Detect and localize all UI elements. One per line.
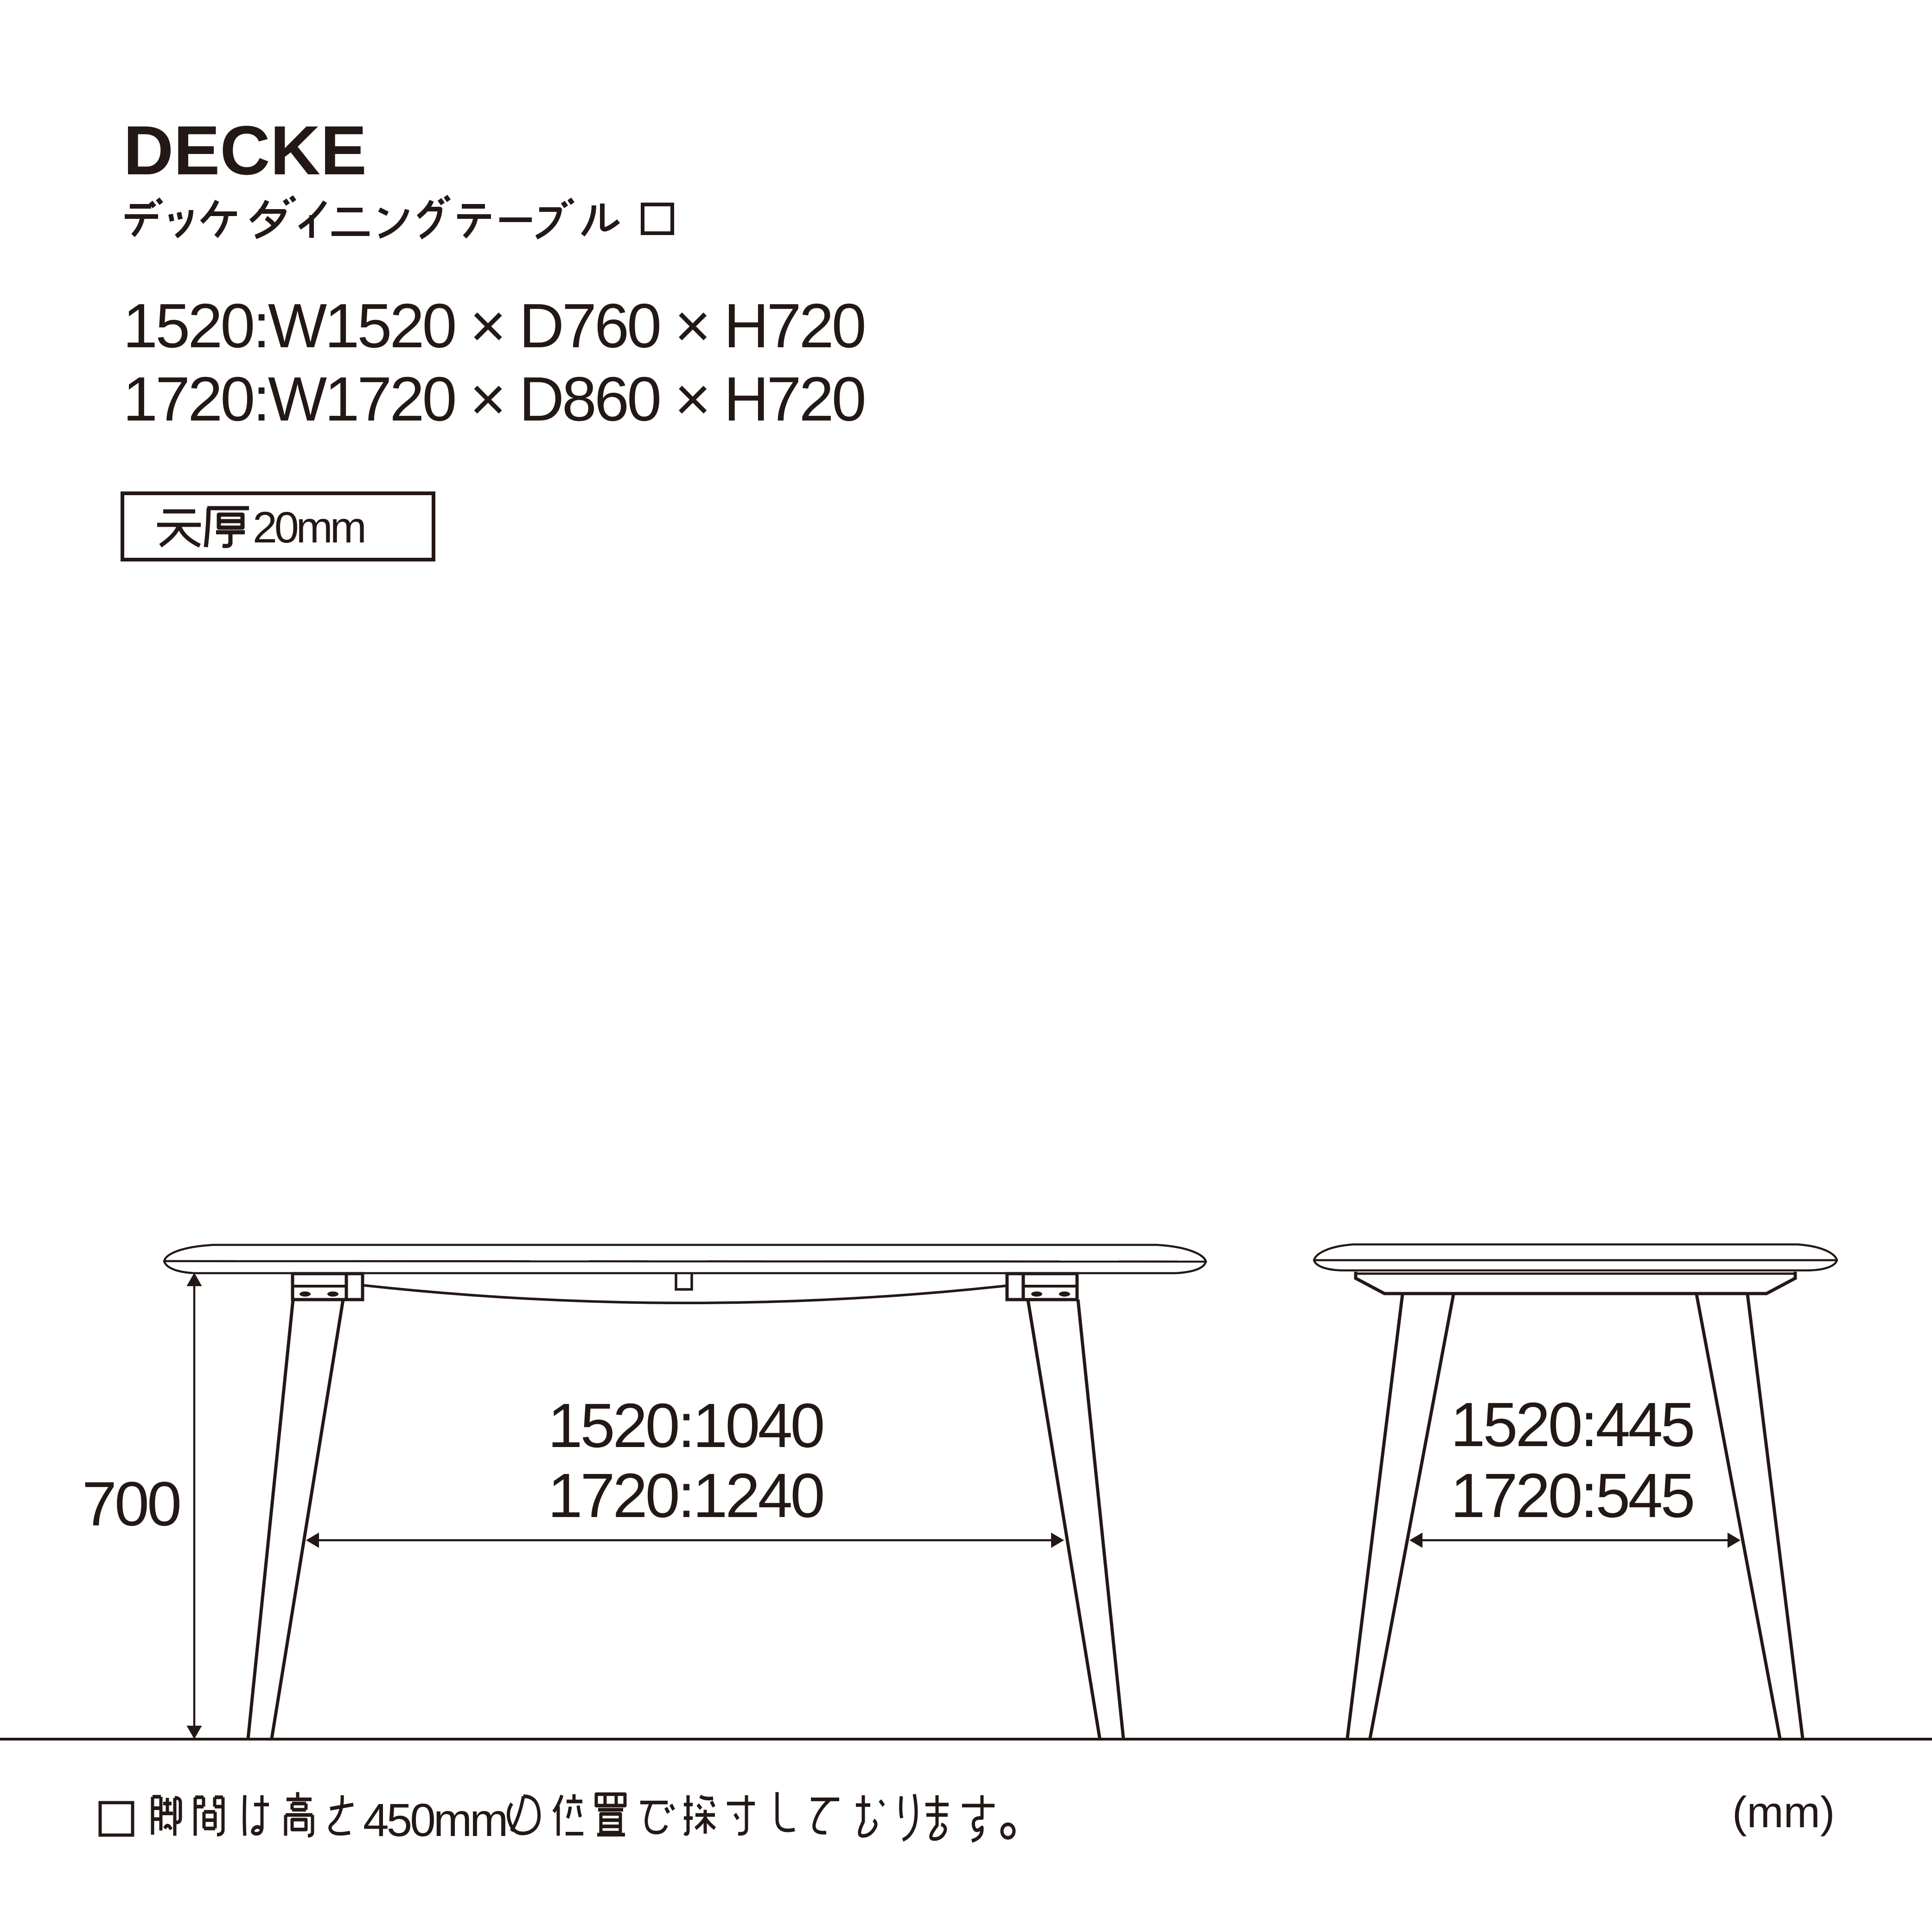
svg-text:(mm): (mm) (1732, 1788, 1835, 1837)
svg-text:700: 700 (82, 1469, 179, 1539)
svg-text:1520:W1520 × D760 × H720: 1520:W1520 × D760 × H720 (123, 291, 864, 361)
svg-text:1520:1040: 1520:1040 (548, 1390, 823, 1460)
svg-text:DECKE: DECKE (123, 111, 367, 189)
svg-text:450mm: 450mm (363, 1794, 506, 1846)
svg-text:1520:445: 1520:445 (1450, 1390, 1693, 1460)
svg-text:1720:545: 1720:545 (1450, 1460, 1693, 1530)
svg-text:1720:1240: 1720:1240 (548, 1460, 823, 1530)
svg-text:20mm: 20mm (253, 503, 364, 552)
svg-text:1720:W1720 × D860 × H720: 1720:W1720 × D860 × H720 (123, 364, 864, 434)
